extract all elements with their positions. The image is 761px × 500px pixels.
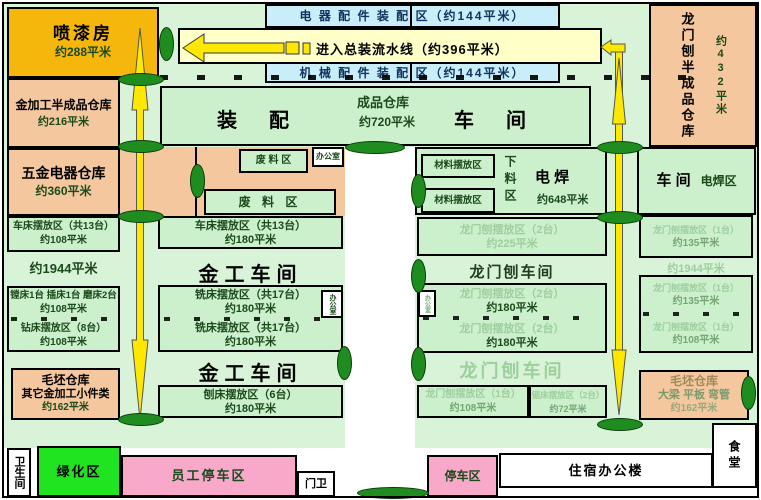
gantry-right-area-135a: 龙门刨摆放区（1台） 约135平米 xyxy=(639,215,753,258)
office-label: 办公室 xyxy=(325,294,339,315)
welding-zone-label: 电焊区 xyxy=(701,174,737,188)
gantry-semi-warehouse-area: 约432平米 xyxy=(713,35,729,116)
flow-arrow-left-icon xyxy=(180,30,604,66)
gate-house-label: 门卫 xyxy=(305,477,327,491)
blank-warehouse-right: 毛坯仓库 大梁 平板 弯管 约162平米 xyxy=(639,370,749,420)
shrub-icon xyxy=(597,418,643,431)
electric-parts-assembly-strip: 电 器 配 件 装 配 区（约144平米） xyxy=(265,4,560,28)
green-zone-label: 绿化区 xyxy=(56,465,101,479)
boring-area-section: 镗床1台 插床1台 磨床2台 约108平米 xyxy=(9,288,118,317)
saw-area-area: 约72平米 xyxy=(549,402,586,416)
saw-area-title: 锯床摆放区（2台） xyxy=(532,388,605,402)
toilet-label: 卫生间 xyxy=(11,456,27,489)
staff-parking-label: 员工停车区 xyxy=(171,469,246,483)
assembly-shop-title-right: 车 间 xyxy=(454,104,532,133)
boring-area-title: 镗床1台 插床1台 磨床2台 xyxy=(10,289,117,303)
right-total-area: 约1944平米 xyxy=(639,260,753,276)
scrap-area-2: 废 料 区 xyxy=(204,189,336,215)
milling-area-1-title: 铣床摆放区（共17台） xyxy=(195,288,306,302)
shrub-icon xyxy=(345,141,405,154)
blank-warehouse-right-area: 约162平米 xyxy=(671,402,718,416)
left-total-area: 约1944平米 xyxy=(7,262,120,276)
gantry-shop-title-2: 龙门刨车间 xyxy=(417,357,607,383)
blank-warehouse-left-area: 约162平米 xyxy=(42,401,89,415)
gantry-area-180-2-area: 约180平米 xyxy=(486,336,537,350)
milling-area-section-2: 铣床摆放区（共17台） 约180平米 xyxy=(160,321,341,351)
lathe-area-left-area: 约108平米 xyxy=(40,234,87,248)
gantry-right-135b-section: 龙门刨摆放区（1台） 约135平米 xyxy=(641,277,751,312)
metal-semi-warehouse-title: 金加工半成品仓库 xyxy=(15,98,111,112)
gantry-area-225-title: 龙门刨摆放区（2台） xyxy=(459,223,564,237)
office-box-gantry: 办公室 xyxy=(418,290,436,317)
paint-room-area: 约288平米 xyxy=(55,45,111,59)
toilet: 卫生间 xyxy=(7,448,31,497)
office-box-mid: 办公室 xyxy=(321,290,343,318)
gantry-right-108-area: 约108平米 xyxy=(673,334,720,348)
shrub-icon xyxy=(357,487,429,499)
hardware-electric-warehouse: 五金电器仓库 约360平米 xyxy=(7,148,120,216)
metalworking-shop-title-2: 金工车间 xyxy=(158,357,343,386)
gantry-area-225: 龙门刨摆放区（2台） 约225平米 xyxy=(417,217,607,256)
material-area-2-label: 材料摆放区 xyxy=(434,194,482,208)
finished-goods-area: 约720平米 xyxy=(359,115,415,129)
material-area-2: 材料摆放区 xyxy=(421,188,495,213)
finished-goods-warehouse-label: 成品仓库 xyxy=(357,96,409,110)
assembly-shop: 装 配 成品仓库 约720平米 车 间 xyxy=(160,86,591,146)
shrub-icon xyxy=(118,73,164,86)
tree-icon xyxy=(411,347,426,381)
gantry-area-180: 龙门刨摆放区（2台） 约180平米 龙门刨摆放区（2台） 约180平米 xyxy=(417,283,607,353)
welding-shop-title-right: 车 间 xyxy=(656,174,690,188)
gantry-area-180-2-title: 龙门刨摆放区（2台） xyxy=(459,322,564,336)
blank-warehouse-left: 毛坯仓库 其它金加工小件类 约162平米 xyxy=(11,368,120,420)
paint-room-title: 喷漆房 xyxy=(53,27,113,41)
metalworking-shop-title-1: 金工车间 xyxy=(158,258,343,287)
shrub-icon xyxy=(597,141,643,154)
parking-area-label: 停车区 xyxy=(444,469,480,483)
dorm-office-building: 住宿办公楼 xyxy=(499,453,713,488)
gantry-area-180-section-2: 龙门刨摆放区（2台） 约180平米 xyxy=(419,320,605,351)
lathe-area-left-title: 车床摆放区（共13台） xyxy=(13,220,114,234)
gate-house: 门卫 xyxy=(297,471,335,497)
dorm-office-label: 住宿办公楼 xyxy=(568,464,643,478)
welding-shop-left: 材料摆放区 材料摆放区 下料区 电 焊 约648平米 xyxy=(415,147,607,215)
shrub-icon xyxy=(118,210,164,223)
welding-shop-area: 约648平米 xyxy=(537,193,588,207)
welding-shop-right: 车 间 电焊区 xyxy=(637,147,756,215)
strip-divider xyxy=(410,6,412,26)
milling-area-2-title: 铣床摆放区（共17台） xyxy=(195,321,306,335)
gantry-right-135b-title: 龙门刨摆放区（1台） xyxy=(653,281,739,295)
drill-area-area: 约108平米 xyxy=(40,336,87,350)
office-label: 办公室 xyxy=(423,295,432,313)
metal-semi-finished-warehouse: 金加工半成品仓库 约216平米 xyxy=(7,78,120,148)
gantry-right-135b-area: 约135平米 xyxy=(673,295,720,309)
central-corridor xyxy=(345,147,415,448)
lathe-area-left: 车床摆放区（共13台） 约108平米 xyxy=(7,216,120,252)
lathe-area-mid: 车床摆放区（共13台） 约180平米 xyxy=(158,216,343,249)
milling-area-2-area: 约180平米 xyxy=(225,335,276,349)
gantry-right-108-section: 龙门刨摆放区（1台） 约108平米 xyxy=(641,316,751,351)
material-area-1-label: 材料摆放区 xyxy=(434,159,482,173)
milling-area-section-1: 铣床摆放区（共17台） 约180平米 xyxy=(160,287,341,317)
shrub-icon xyxy=(597,211,643,224)
staff-parking: 员工停车区 xyxy=(121,455,297,497)
factory-floor-plan: 电 器 配 件 装 配 区（约144平米） 进入总装流水线（约396平米） 机 … xyxy=(0,0,761,500)
hardware-warehouse-title: 五金电器仓库 xyxy=(22,166,106,180)
gantry-right-135a-area: 约135平米 xyxy=(673,237,720,251)
scrap-area-2-label: 废 料 区 xyxy=(239,195,302,209)
scrap-area-1-label: 废 料 区 xyxy=(256,154,292,168)
planing-area-area: 约180平米 xyxy=(225,402,276,416)
milling-area: 铣床摆放区（共17台） 约180平米 铣床摆放区（共17台） 约180平米 xyxy=(158,285,343,352)
tree-icon xyxy=(337,346,352,380)
gantry-area-108-area: 约108平米 xyxy=(450,402,497,416)
planing-area-title: 刨床摆放区（6台） xyxy=(203,388,297,402)
gantry-area-108-title: 龙门刨摆放区（1台） xyxy=(425,388,521,402)
vertical-flow-arrow-right-icon xyxy=(595,36,631,420)
office-label: 办公室 xyxy=(316,150,340,164)
tree-icon xyxy=(159,27,174,61)
material-area-1: 材料摆放区 xyxy=(421,154,495,178)
gantry-right-108-title: 龙门刨摆放区（1台） xyxy=(653,320,739,334)
tree-icon xyxy=(190,164,205,198)
drill-area-title: 钻床摆放区（8台） xyxy=(21,322,107,336)
canteen: 食堂 xyxy=(712,423,757,488)
canteen-label: 食堂 xyxy=(726,440,743,472)
office-box-top: 办公室 xyxy=(312,147,344,167)
electric-parts-assembly-label: 电 器 配 件 装 配 区（约144平米） xyxy=(299,9,525,23)
gantry-area-180-1-area: 约180平米 xyxy=(486,301,537,315)
gantry-right-double-box: 龙门刨摆放区（1台） 约135平米 龙门刨摆放区（1台） 约108平米 xyxy=(639,275,753,353)
parking-area: 停车区 xyxy=(427,455,498,497)
blank-warehouse-right-sub: 大梁 平板 弯管 xyxy=(658,388,730,402)
tree-icon xyxy=(411,259,426,293)
blank-warehouse-left-sub: 其它金加工小件类 xyxy=(22,387,110,401)
lathe-area-mid-area: 约180平米 xyxy=(225,233,276,247)
tree-icon xyxy=(411,174,426,208)
milling-area-1-area: 约180平米 xyxy=(225,302,276,316)
blank-warehouse-left-title: 毛坯仓库 xyxy=(41,373,89,387)
shrub-icon xyxy=(118,140,164,153)
gantry-area-180-section-1: 龙门刨摆放区（2台） 约180平米 xyxy=(419,285,605,316)
green-zone: 绿化区 xyxy=(37,446,121,497)
planing-area: 刨床摆放区（6台） 约180平米 xyxy=(158,385,343,418)
tree-icon xyxy=(741,376,756,410)
assembly-shop-title-left: 装 配 xyxy=(217,104,295,133)
main-flow-line-box: 进入总装流水线（约396平米） xyxy=(178,28,602,64)
gantry-shop-title-1: 龙门刨车间 xyxy=(417,266,607,280)
scrap-area-1: 废 料 区 xyxy=(239,149,308,173)
metal-semi-warehouse-area: 约216平米 xyxy=(38,115,89,129)
drill-area-section: 钻床摆放区（8台） 约108平米 xyxy=(9,321,118,350)
gantry-area-108: 龙门刨摆放区（1台） 约108平米 xyxy=(417,385,529,418)
boring-area-area: 约108平米 xyxy=(40,303,87,317)
gantry-right-135a-title: 龙门刨摆放区（1台） xyxy=(653,223,739,237)
hardware-warehouse-area: 约360平米 xyxy=(35,184,91,198)
gantry-area-225-area: 约225平米 xyxy=(486,237,537,251)
cutting-area-label: 下料区 xyxy=(503,155,517,206)
shrub-icon xyxy=(118,413,164,426)
lathe-area-mid-title: 车床摆放区（共13台） xyxy=(195,219,306,233)
welding-shop-title-left: 电 焊 xyxy=(535,171,569,185)
blank-warehouse-right-title: 毛坯仓库 xyxy=(670,374,718,388)
gantry-area-180-1-title: 龙门刨摆放区（2台） xyxy=(459,287,564,301)
boring-drill-area: 镗床1台 插床1台 磨床2台 约108平米 钻床摆放区（8台） 约108平米 xyxy=(7,286,120,352)
